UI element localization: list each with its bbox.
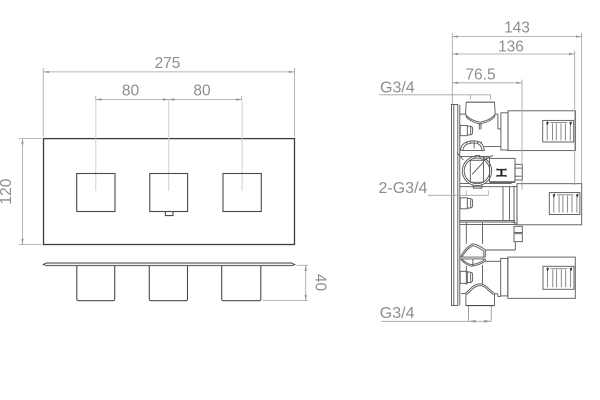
svg-text:G3/4: G3/4 — [380, 305, 415, 322]
svg-text:136: 136 — [498, 39, 524, 56]
svg-text:80: 80 — [193, 83, 211, 100]
svg-text:80: 80 — [122, 83, 140, 100]
svg-text:76.5: 76.5 — [465, 67, 495, 84]
svg-text:40: 40 — [312, 274, 329, 292]
svg-text:2-G3/4: 2-G3/4 — [379, 180, 428, 197]
svg-text:G3/4: G3/4 — [380, 80, 415, 97]
svg-text:275: 275 — [155, 55, 181, 72]
svg-text:143: 143 — [504, 20, 530, 37]
svg-text:120: 120 — [0, 178, 15, 204]
